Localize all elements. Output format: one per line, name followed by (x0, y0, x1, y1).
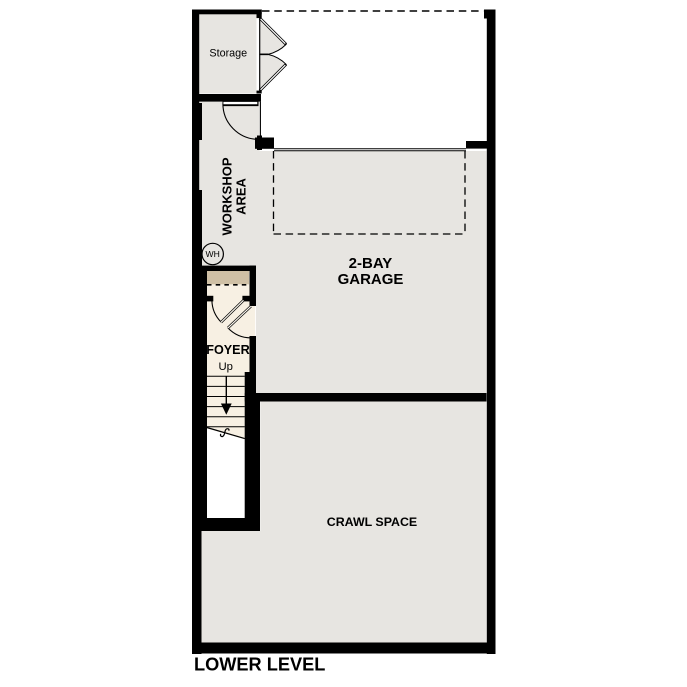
svg-text:GARAGE: GARAGE (338, 271, 404, 288)
svg-text:2-BAY: 2-BAY (349, 255, 393, 272)
svg-text:CRAWL SPACE: CRAWL SPACE (327, 515, 417, 529)
svg-text:LOWER LEVEL: LOWER LEVEL (194, 655, 325, 675)
svg-text:Storage: Storage (209, 48, 247, 60)
svg-text:WORKSHOP: WORKSHOP (219, 157, 234, 235)
svg-text:WH: WH (206, 249, 220, 259)
svg-text:FOYER: FOYER (206, 343, 249, 357)
svg-text:AREA: AREA (234, 177, 249, 214)
svg-text:Up: Up (218, 361, 232, 373)
